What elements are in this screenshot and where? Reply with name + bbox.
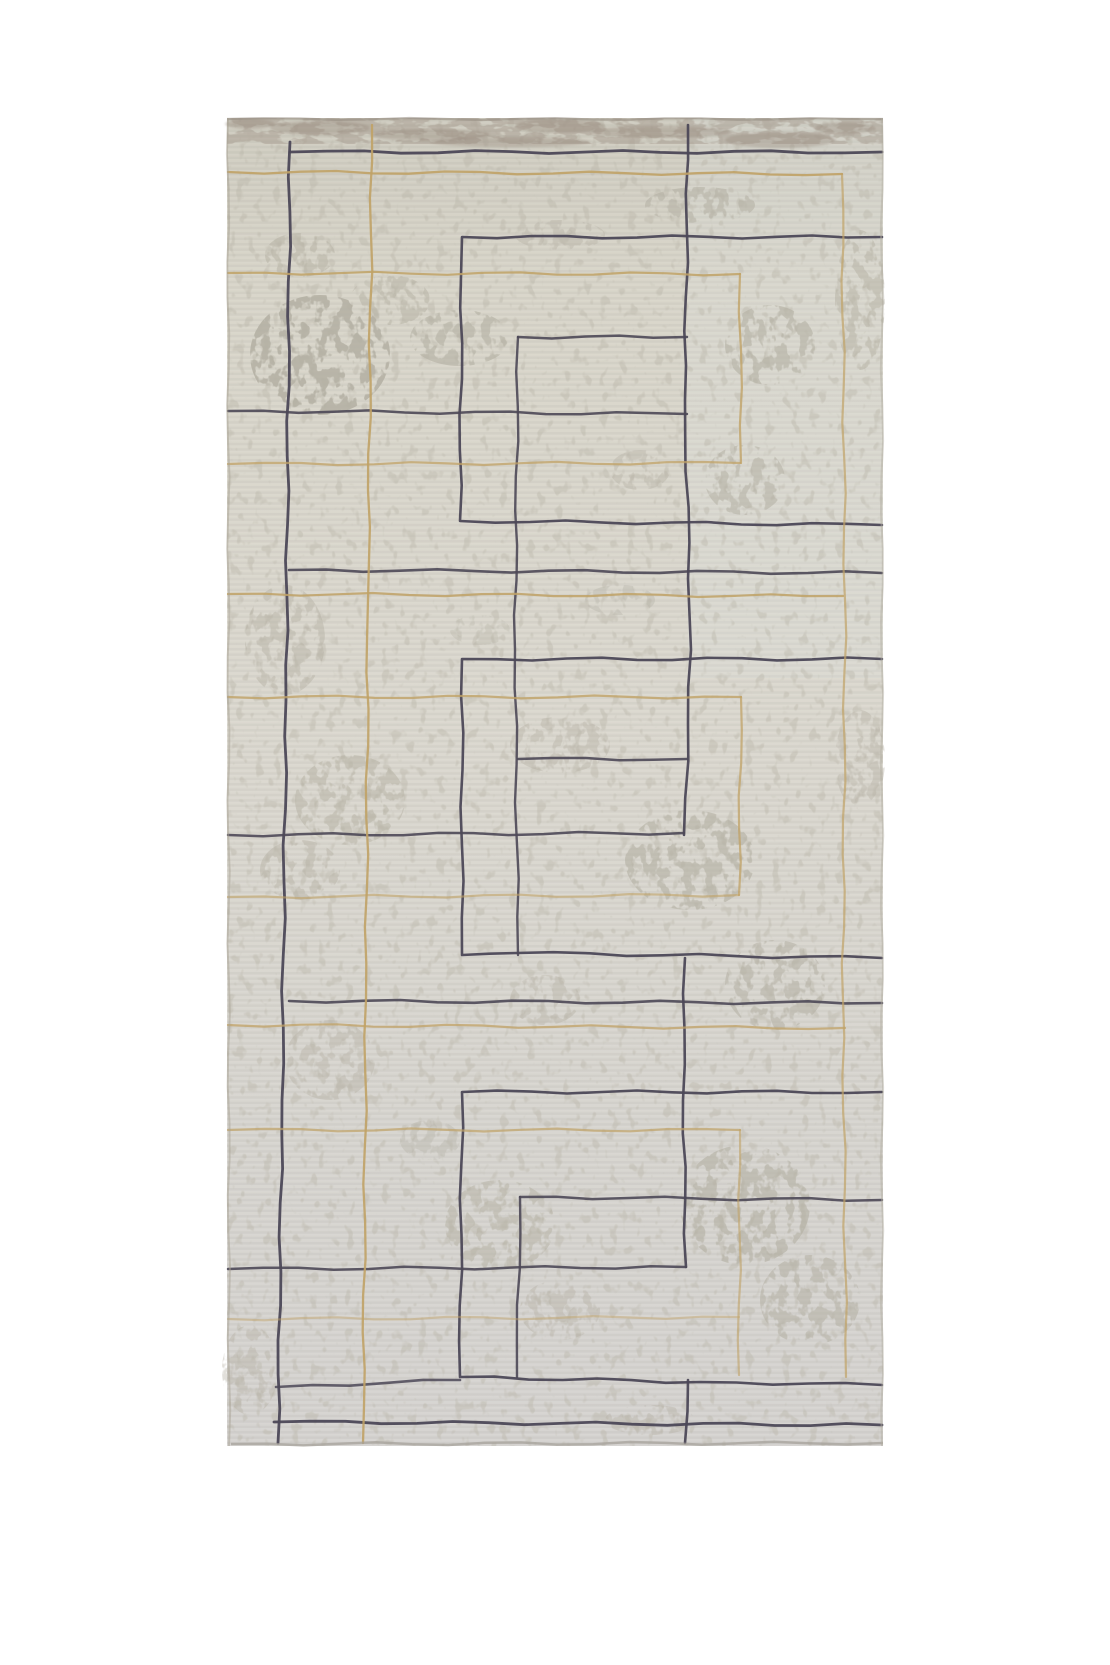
rug-photo	[0, 0, 1110, 1665]
page-background	[0, 0, 1110, 1665]
rug-pattern-svg	[0, 0, 1110, 1665]
rug	[222, 118, 885, 1446]
rug-navy-line	[290, 151, 882, 154]
